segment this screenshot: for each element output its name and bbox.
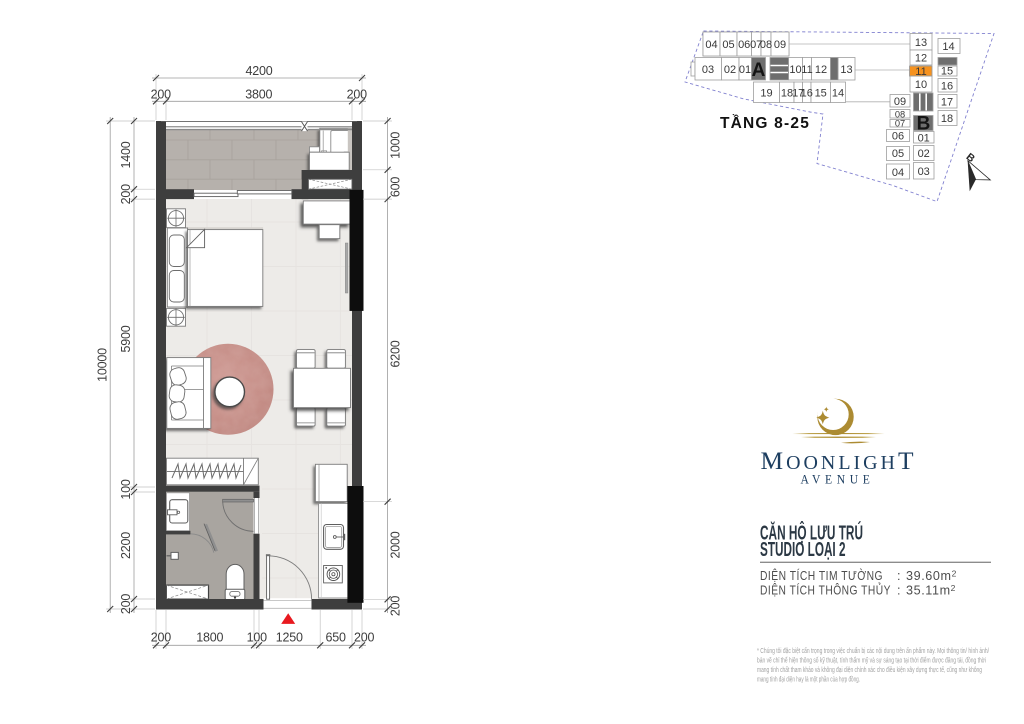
svg-text:06: 06 xyxy=(738,39,750,51)
svg-text:03: 03 xyxy=(918,166,930,178)
svg-text:13: 13 xyxy=(915,37,927,49)
svg-text:A: A xyxy=(752,60,766,81)
svg-text:14: 14 xyxy=(832,88,844,100)
svg-text:35.11m2: 35.11m2 xyxy=(906,583,956,598)
svg-text:10: 10 xyxy=(789,64,801,76)
svg-text:TẦNG 8-25: TẦNG 8-25 xyxy=(720,115,810,132)
svg-text:200: 200 xyxy=(354,631,375,645)
svg-text::: : xyxy=(897,569,901,583)
svg-text:STUDIO LOẠI 2: STUDIO LOẠI 2 xyxy=(760,538,846,561)
svg-text:1000: 1000 xyxy=(389,132,403,159)
svg-text:B: B xyxy=(917,114,931,135)
svg-text:mang tính đại diện hay là một: mang tính đại diện hay là một phần của h… xyxy=(757,675,860,684)
svg-text:DIỆN TÍCH TIM TƯỜNG: DIỆN TÍCH TIM TƯỜNG xyxy=(760,568,883,583)
svg-text:bản vẽ chỉ thể hiện thông số k: bản vẽ chỉ thể hiện thông số kỹ thuật, t… xyxy=(757,656,986,665)
svg-text:18: 18 xyxy=(941,113,953,125)
svg-text:09: 09 xyxy=(774,39,786,51)
svg-text:* Chúng tôi đặc biệt cẩn trọng: * Chúng tôi đặc biệt cẩn trọng trong việ… xyxy=(757,646,989,655)
svg-text:15: 15 xyxy=(941,66,953,78)
svg-text:13: 13 xyxy=(840,64,852,76)
svg-text:05: 05 xyxy=(722,39,734,51)
svg-text:100: 100 xyxy=(247,631,268,645)
svg-text:39.60m2: 39.60m2 xyxy=(906,569,957,584)
svg-text:16: 16 xyxy=(801,88,813,100)
svg-text:03: 03 xyxy=(702,64,714,76)
svg-text:200: 200 xyxy=(389,596,403,617)
svg-text:04: 04 xyxy=(892,167,904,179)
svg-text:14: 14 xyxy=(942,41,954,53)
svg-text::: : xyxy=(897,584,901,598)
svg-text:200: 200 xyxy=(119,184,133,205)
svg-text:15: 15 xyxy=(815,88,827,100)
svg-text:05: 05 xyxy=(892,148,904,160)
svg-text:11: 11 xyxy=(801,64,812,76)
svg-text:mang tính chất tham khảo và kh: mang tính chất tham khảo và không đại di… xyxy=(757,665,982,674)
svg-text:3800: 3800 xyxy=(245,88,272,102)
svg-text:12: 12 xyxy=(815,64,827,76)
svg-text:17: 17 xyxy=(941,97,953,109)
svg-text:600: 600 xyxy=(389,177,403,198)
svg-text:1800: 1800 xyxy=(196,631,223,645)
svg-text:4200: 4200 xyxy=(245,64,272,78)
svg-text:10: 10 xyxy=(915,79,927,91)
svg-text:2200: 2200 xyxy=(119,532,133,559)
svg-text:6200: 6200 xyxy=(389,340,403,367)
svg-text:06: 06 xyxy=(892,131,904,143)
svg-text:02: 02 xyxy=(724,64,736,76)
svg-text:01: 01 xyxy=(739,64,751,76)
svg-text:12: 12 xyxy=(915,53,927,65)
svg-text:04: 04 xyxy=(705,39,717,51)
svg-text:200: 200 xyxy=(151,88,172,102)
svg-text:09: 09 xyxy=(894,96,906,108)
svg-text:DIỆN TÍCH THÔNG THỦY: DIỆN TÍCH THÔNG THỦY xyxy=(760,583,891,598)
svg-text:650: 650 xyxy=(325,631,346,645)
svg-text:100: 100 xyxy=(119,479,133,500)
svg-text:07: 07 xyxy=(895,118,905,128)
svg-text:10000: 10000 xyxy=(95,348,109,382)
svg-text:11: 11 xyxy=(915,66,926,78)
svg-text:16: 16 xyxy=(941,81,953,93)
svg-text:19: 19 xyxy=(760,88,772,100)
svg-text:1400: 1400 xyxy=(119,141,133,168)
svg-text:1250: 1250 xyxy=(276,631,303,645)
svg-text:08: 08 xyxy=(760,39,772,51)
svg-text:200: 200 xyxy=(151,631,172,645)
svg-text:200: 200 xyxy=(347,88,368,102)
svg-text:AVENUE: AVENUE xyxy=(801,472,875,487)
svg-text:5900: 5900 xyxy=(119,325,133,352)
svg-text:02: 02 xyxy=(918,148,930,160)
svg-text:200: 200 xyxy=(119,594,133,615)
svg-text:2000: 2000 xyxy=(389,531,403,558)
